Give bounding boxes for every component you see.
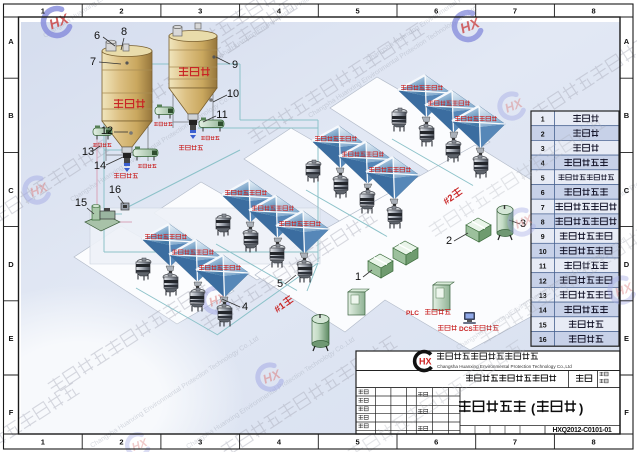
- svg-text:1: 1: [355, 271, 361, 283]
- svg-text:2: 2: [119, 7, 123, 16]
- svg-text:7: 7: [513, 438, 517, 447]
- svg-text:10: 10: [539, 249, 547, 256]
- svg-text:HXQ2012-C0101-01: HXQ2012-C0101-01: [552, 427, 611, 434]
- svg-text:D: D: [624, 260, 630, 269]
- svg-text:E: E: [624, 334, 629, 343]
- svg-text:3: 3: [198, 7, 202, 16]
- svg-text:5: 5: [541, 175, 545, 182]
- svg-text:9: 9: [541, 234, 545, 241]
- svg-text:(: (: [531, 401, 536, 416]
- svg-text:Changsha Huanxing Environmenta: Changsha Huanxing Environmental Protecti…: [437, 364, 572, 369]
- svg-text:8: 8: [121, 26, 127, 38]
- svg-text:8: 8: [592, 7, 596, 16]
- svg-text:12: 12: [539, 278, 547, 285]
- svg-text:4: 4: [242, 301, 248, 313]
- svg-text:1: 1: [541, 117, 545, 124]
- svg-text:12: 12: [101, 125, 113, 137]
- svg-text:7: 7: [513, 7, 517, 16]
- svg-text:F: F: [624, 408, 629, 417]
- svg-text:B: B: [624, 111, 630, 120]
- svg-text:6: 6: [434, 438, 438, 447]
- svg-text:6: 6: [94, 30, 100, 42]
- svg-text:8: 8: [592, 438, 596, 447]
- svg-text:16: 16: [109, 184, 121, 196]
- svg-text:1: 1: [41, 438, 45, 447]
- svg-text:7: 7: [541, 205, 545, 212]
- svg-text:A: A: [624, 37, 630, 46]
- svg-text:8: 8: [541, 220, 545, 227]
- svg-text:5: 5: [277, 278, 283, 290]
- svg-text:5: 5: [356, 438, 360, 447]
- svg-text:1: 1: [41, 7, 45, 16]
- svg-text:13: 13: [82, 146, 94, 158]
- svg-text:2: 2: [541, 131, 545, 138]
- svg-text:14: 14: [94, 160, 106, 172]
- svg-text:3: 3: [198, 438, 202, 447]
- svg-text:HX: HX: [419, 357, 432, 367]
- svg-text:C: C: [624, 186, 630, 195]
- svg-text:6: 6: [434, 7, 438, 16]
- svg-text:PLC: PLC: [406, 310, 419, 317]
- svg-text:B: B: [8, 111, 14, 120]
- svg-text:15: 15: [75, 197, 87, 209]
- svg-text:): ): [579, 401, 583, 416]
- svg-text:2: 2: [446, 235, 452, 247]
- svg-text:10: 10: [227, 88, 239, 100]
- svg-text:6: 6: [541, 190, 545, 197]
- svg-text:F: F: [9, 408, 14, 417]
- svg-text:2: 2: [119, 438, 123, 447]
- svg-text:11: 11: [539, 264, 547, 271]
- svg-text:9: 9: [232, 59, 238, 71]
- svg-text:C: C: [8, 186, 14, 195]
- svg-text:5: 5: [356, 7, 360, 16]
- svg-text:DCS: DCS: [459, 326, 473, 333]
- svg-text:A: A: [8, 37, 14, 46]
- svg-text:E: E: [8, 334, 13, 343]
- svg-text:16: 16: [539, 337, 547, 344]
- svg-text:15: 15: [539, 322, 547, 329]
- svg-text:D: D: [8, 260, 14, 269]
- svg-text:14: 14: [539, 308, 547, 315]
- svg-text:7: 7: [90, 56, 96, 68]
- svg-text:11: 11: [216, 109, 227, 121]
